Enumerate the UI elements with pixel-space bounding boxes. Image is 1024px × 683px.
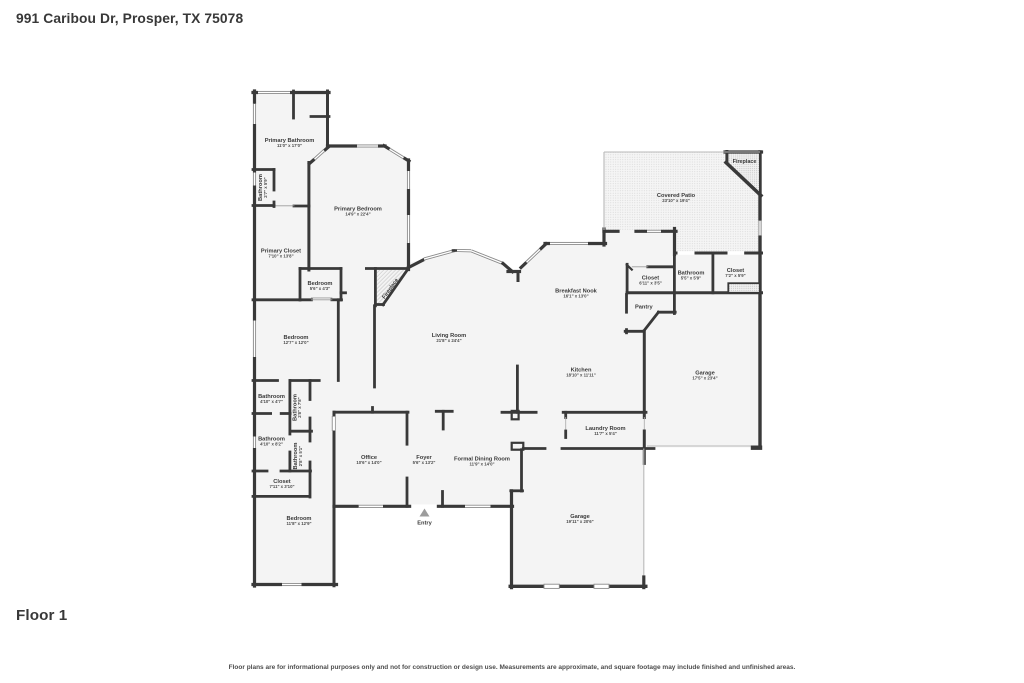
svg-text:7'10" x 13'8": 7'10" x 13'8" [268,253,293,258]
svg-text:23'10" x 19'4": 23'10" x 19'4" [662,198,690,203]
svg-text:5'6" x 13'2": 5'6" x 13'2" [413,460,436,465]
svg-text:11'0" x 17'0": 11'0" x 17'0" [277,143,302,148]
svg-text:2'8" x 7'8": 2'8" x 7'8" [297,397,302,417]
svg-text:2'8" x 5'1": 2'8" x 5'1" [298,446,303,466]
svg-text:11'9" x 14'0": 11'9" x 14'0" [470,461,495,466]
svg-text:10'6" x 14'0": 10'6" x 14'0" [356,460,381,465]
svg-text:17'5" x 23'4": 17'5" x 23'4" [692,375,717,380]
svg-text:Fireplace: Fireplace [733,159,757,165]
svg-text:5'6" x 4'3": 5'6" x 4'3" [310,286,330,291]
svg-text:14'9" x 22'4": 14'9" x 22'4" [345,211,370,216]
svg-text:Pantry: Pantry [635,305,654,311]
svg-text:7'11" x 3'10": 7'11" x 3'10" [270,484,295,489]
svg-text:4'10" x 8'2": 4'10" x 8'2" [260,441,283,446]
svg-text:7'2" x 5'9": 7'2" x 5'9" [725,273,745,278]
svg-text:11'7" x 5'4": 11'7" x 5'4" [594,431,617,436]
svg-text:12'7" x 12'0": 12'7" x 12'0" [283,340,308,345]
svg-text:19'11" x 20'6": 19'11" x 20'6" [566,519,593,524]
svg-text:16'1" x 13'0": 16'1" x 13'0" [563,293,588,298]
svg-text:18'10" x 11'11": 18'10" x 11'11" [566,372,596,377]
svg-text:21'8" x 24'4": 21'8" x 24'4" [436,338,461,343]
svg-text:5'5" x 5'9": 5'5" x 5'9" [681,275,701,280]
svg-text:6'11" x 3'5": 6'11" x 3'5" [639,280,662,285]
svg-text:2'7" x 5'9": 2'7" x 5'9" [263,177,268,197]
svg-text:4'10" x 4'7": 4'10" x 4'7" [260,399,283,404]
svg-text:Entry: Entry [417,521,432,527]
svg-text:11'8" x 12'9": 11'8" x 12'9" [287,521,312,526]
